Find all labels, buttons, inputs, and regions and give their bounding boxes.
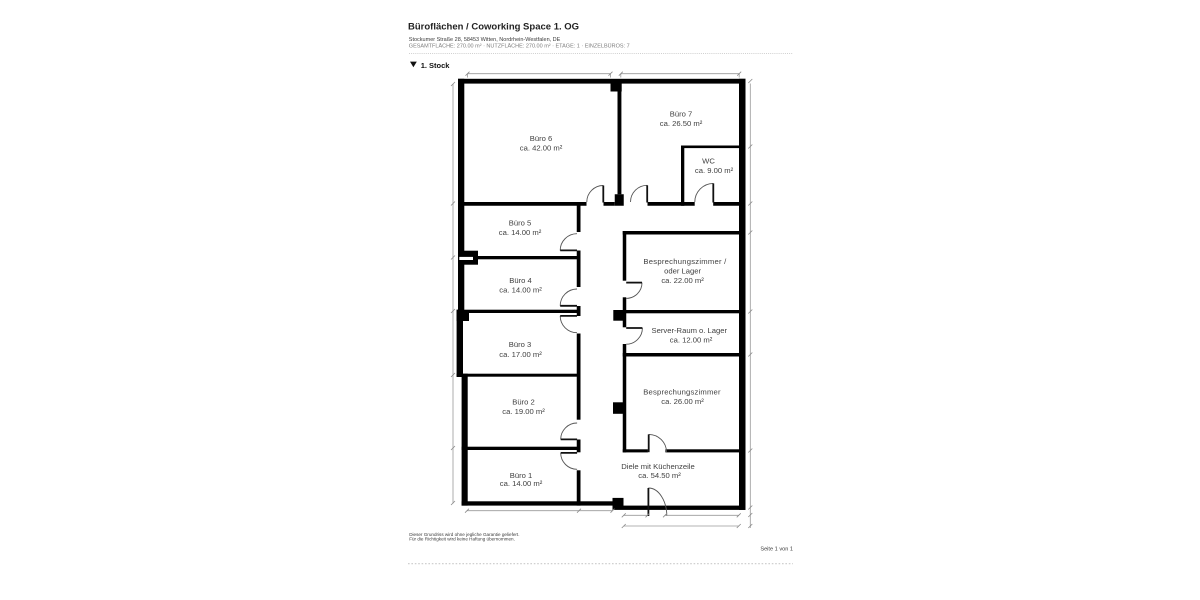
svg-text:WC: WC [702, 157, 715, 166]
svg-text:ca. 19.00 m²: ca. 19.00 m² [502, 407, 545, 416]
svg-text:GESAMTFLÄCHE: 270.00 m² · NUTZ: GESAMTFLÄCHE: 270.00 m² · NUTZFLÄCHE: 27… [409, 42, 630, 49]
svg-text:Büro 6: Büro 6 [530, 134, 553, 143]
svg-text:ca. 54.50 m²: ca. 54.50 m² [638, 471, 681, 480]
svg-text:Büro 3: Büro 3 [509, 340, 532, 349]
svg-text:Büroflächen / Coworking Space: Büroflächen / Coworking Space 1. OG [408, 21, 579, 32]
svg-text:ca. 14.00 m²: ca. 14.00 m² [499, 228, 542, 237]
svg-text:ca. 9.00 m²: ca. 9.00 m² [695, 166, 734, 175]
svg-text:1. Stock: 1. Stock [421, 61, 451, 70]
svg-text:Besprechungszimmer /: Besprechungszimmer / [643, 257, 727, 266]
svg-text:Diele mit Küchenzeile: Diele mit Küchenzeile [621, 462, 694, 471]
svg-text:Server-Raum o. Lager: Server-Raum o. Lager [652, 326, 728, 335]
svg-text:ca. 17.00 m²: ca. 17.00 m² [499, 350, 542, 359]
svg-text:ca. 26.00 m²: ca. 26.00 m² [661, 397, 704, 406]
svg-text:ca. 12.00 m²: ca. 12.00 m² [670, 335, 713, 344]
svg-text:ca. 14.00 m²: ca. 14.00 m² [500, 479, 543, 488]
svg-text:Stockumer Straße 28, 58453 Wit: Stockumer Straße 28, 58453 Witten, Nordr… [409, 37, 561, 43]
svg-text:Büro 2: Büro 2 [512, 397, 535, 406]
svg-text:ca. 22.00 m²: ca. 22.00 m² [661, 276, 704, 285]
svg-text:Für die Richtigkeit wird keine: Für die Richtigkeit wird keine Haftung ü… [409, 537, 515, 542]
svg-text:Büro 7: Büro 7 [670, 109, 693, 118]
svg-text:ca. 26.50 m²: ca. 26.50 m² [660, 119, 703, 128]
svg-text:ca. 14.00 m²: ca. 14.00 m² [499, 286, 542, 295]
svg-text:Büro 5: Büro 5 [509, 218, 532, 227]
svg-text:Seite 1 von 1: Seite 1 von 1 [760, 547, 793, 553]
svg-text:Büro 4: Büro 4 [509, 276, 532, 285]
svg-text:Besprechungszimmer: Besprechungszimmer [643, 387, 721, 396]
svg-text:ca. 42.00 m²: ca. 42.00 m² [520, 144, 563, 153]
svg-text:oder Lager: oder Lager [664, 267, 701, 276]
